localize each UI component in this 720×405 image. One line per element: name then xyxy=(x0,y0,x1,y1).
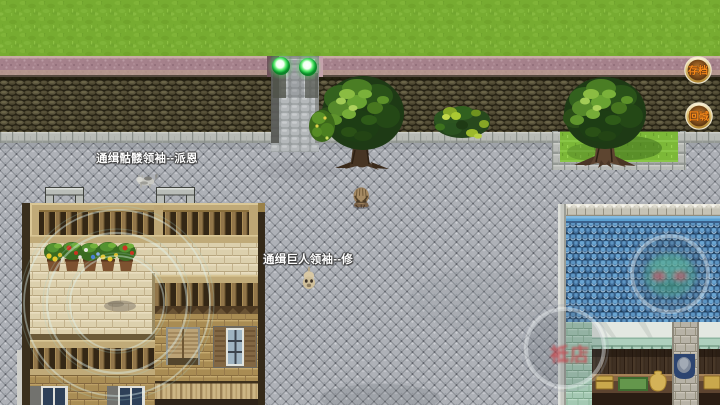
svg-text:回城: 回城 xyxy=(689,110,709,123)
svg-text:存档: 存档 xyxy=(688,64,708,77)
